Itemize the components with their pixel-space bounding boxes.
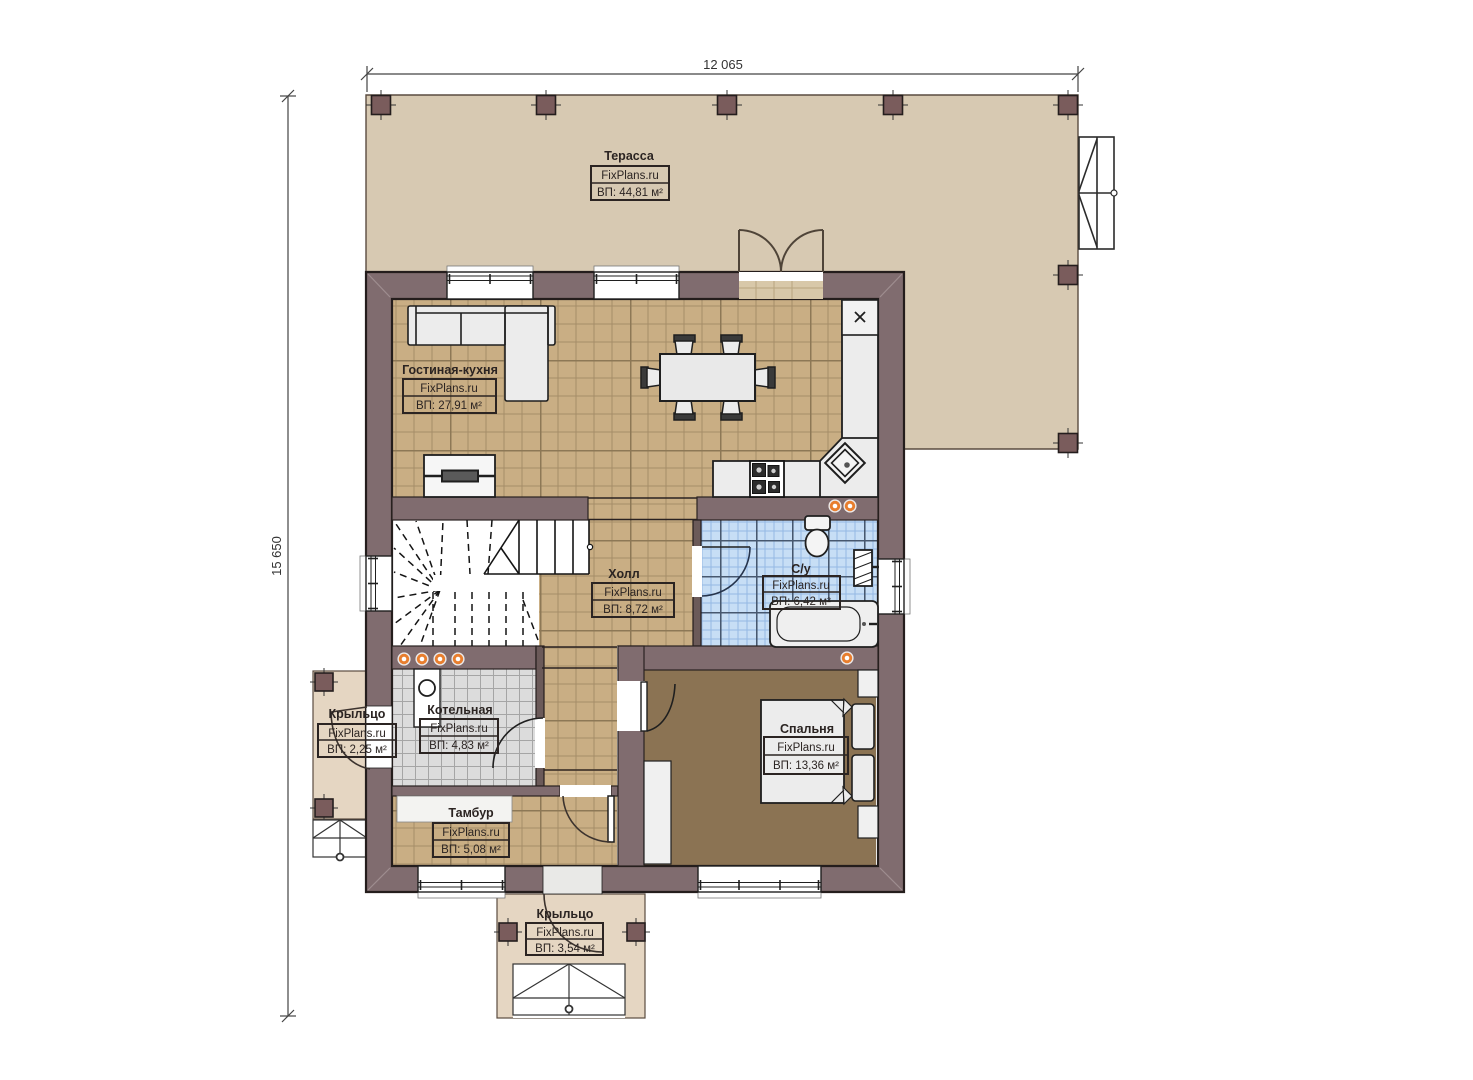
svg-text:Холл: Холл (608, 567, 639, 581)
svg-text:ВП: 44,81 м²: ВП: 44,81 м² (597, 187, 663, 199)
svg-text:Крыльцо: Крыльцо (329, 707, 386, 721)
svg-text:Крыльцо: Крыльцо (537, 907, 594, 921)
svg-text:FixPlans.ru: FixPlans.ru (430, 723, 488, 735)
svg-text:FixPlans.ru: FixPlans.ru (536, 927, 594, 939)
svg-text:FixPlans.ru: FixPlans.ru (420, 383, 478, 395)
svg-text:Спальня: Спальня (780, 722, 834, 736)
svg-text:С/у: С/у (791, 562, 811, 576)
svg-text:12 065: 12 065 (703, 57, 743, 72)
svg-text:FixPlans.ru: FixPlans.ru (601, 170, 659, 182)
svg-text:15 650: 15 650 (269, 536, 284, 576)
svg-text:FixPlans.ru: FixPlans.ru (328, 728, 386, 740)
svg-text:ВП: 6,42 м²: ВП: 6,42 м² (771, 596, 831, 608)
svg-text:FixPlans.ru: FixPlans.ru (604, 587, 662, 599)
svg-text:ВП: 3,54 м²: ВП: 3,54 м² (535, 943, 595, 955)
svg-text:ВП: 5,08 м²: ВП: 5,08 м² (441, 844, 501, 856)
svg-text:ВП: 2,25 м²: ВП: 2,25 м² (327, 744, 387, 756)
svg-text:ВП: 4,83 м²: ВП: 4,83 м² (429, 740, 489, 752)
svg-text:ВП: 13,36 м²: ВП: 13,36 м² (773, 760, 839, 772)
svg-text:Гостиная-кухня: Гостиная-кухня (402, 363, 498, 377)
svg-text:Котельная: Котельная (427, 703, 492, 717)
svg-text:Терасса: Терасса (604, 149, 655, 163)
svg-text:ВП: 8,72 м²: ВП: 8,72 м² (603, 604, 663, 616)
svg-text:FixPlans.ru: FixPlans.ru (442, 827, 500, 839)
svg-text:FixPlans.ru: FixPlans.ru (772, 580, 830, 592)
svg-text:ВП: 27,91 м²: ВП: 27,91 м² (416, 400, 482, 412)
svg-text:Тамбур: Тамбур (448, 806, 494, 820)
svg-text:FixPlans.ru: FixPlans.ru (777, 742, 835, 754)
